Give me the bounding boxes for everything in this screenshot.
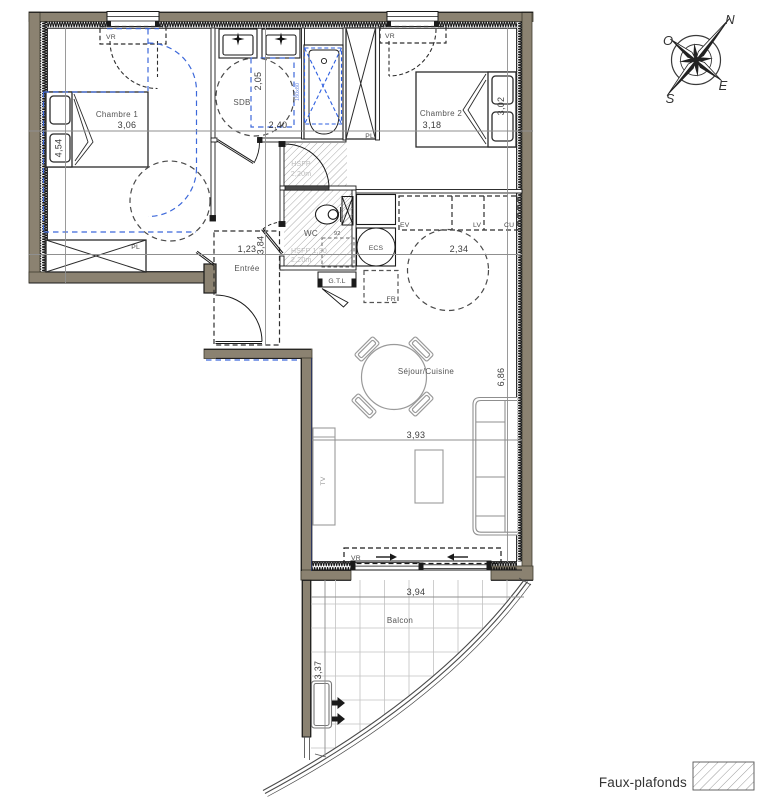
svg-text:HSFP 1,30: HSFP 1,30 bbox=[291, 248, 327, 255]
svg-text:4,54: 4,54 bbox=[54, 139, 64, 158]
svg-text:3,84: 3,84 bbox=[256, 236, 266, 255]
svg-text:92: 92 bbox=[334, 231, 341, 237]
svg-text:VR: VR bbox=[351, 555, 361, 562]
svg-text:N: N bbox=[725, 12, 735, 27]
svg-text:2,34: 2,34 bbox=[450, 244, 469, 254]
svg-text:HSFP: HSFP bbox=[291, 161, 311, 168]
svg-text:3,37: 3,37 bbox=[313, 661, 323, 680]
svg-text:6,86: 6,86 bbox=[496, 368, 506, 387]
svg-text:LV: LV bbox=[473, 222, 481, 229]
svg-text:3,06: 3,06 bbox=[118, 120, 137, 130]
svg-text:Séjour/Cuisine: Séjour/Cuisine bbox=[398, 367, 454, 376]
svg-text:2,40: 2,40 bbox=[269, 120, 288, 130]
svg-text:ECS: ECS bbox=[369, 245, 384, 252]
svg-text:Chambre 2: Chambre 2 bbox=[420, 109, 463, 118]
svg-text:Faux-plafonds: Faux-plafonds bbox=[599, 775, 687, 790]
svg-text:VR: VR bbox=[385, 33, 395, 40]
svg-text:SDB: SDB bbox=[233, 98, 250, 107]
svg-text:S: S bbox=[666, 91, 675, 106]
svg-text:Balcon: Balcon bbox=[387, 616, 413, 625]
svg-text:PL: PL bbox=[131, 244, 140, 251]
svg-text:1,23: 1,23 bbox=[238, 244, 257, 254]
svg-text:Entrée: Entrée bbox=[234, 264, 260, 273]
svg-text:3,02: 3,02 bbox=[496, 97, 506, 116]
svg-text:VR: VR bbox=[106, 34, 116, 41]
svg-text:180x80: 180x80 bbox=[295, 83, 301, 101]
svg-text:FR: FR bbox=[387, 296, 396, 303]
svg-text:E: E bbox=[719, 78, 728, 93]
svg-text:PL: PL bbox=[365, 133, 374, 140]
svg-text:Chambre 1: Chambre 1 bbox=[96, 110, 139, 119]
svg-text:WC: WC bbox=[304, 229, 318, 238]
svg-text:2,05: 2,05 bbox=[253, 72, 263, 91]
svg-text:3,93: 3,93 bbox=[407, 430, 426, 440]
svg-text:3,18: 3,18 bbox=[423, 120, 442, 130]
svg-text:G.T.L: G.T.L bbox=[328, 278, 345, 285]
svg-text:CU: CU bbox=[504, 222, 514, 229]
svg-text:2,20m: 2,20m bbox=[291, 171, 311, 178]
svg-text:O: O bbox=[663, 33, 673, 48]
svg-text:3,94: 3,94 bbox=[407, 587, 426, 597]
svg-text:2,20m: 2,20m bbox=[291, 257, 311, 264]
svg-text:EV: EV bbox=[400, 222, 410, 229]
svg-text:TV: TV bbox=[320, 476, 327, 485]
